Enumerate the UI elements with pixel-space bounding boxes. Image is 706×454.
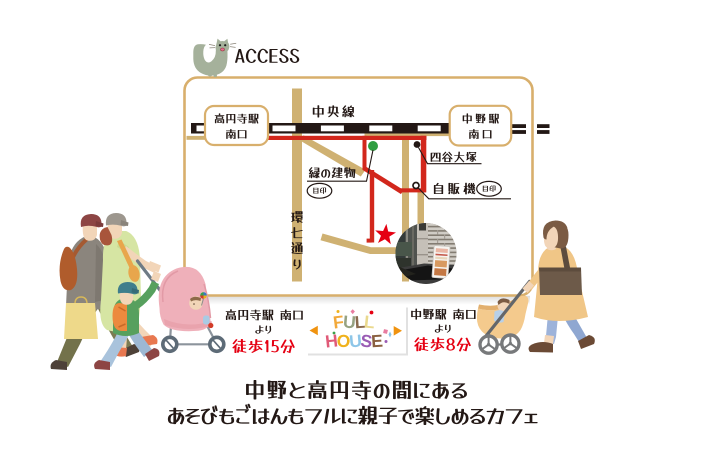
svg-text:E: E (370, 331, 383, 352)
